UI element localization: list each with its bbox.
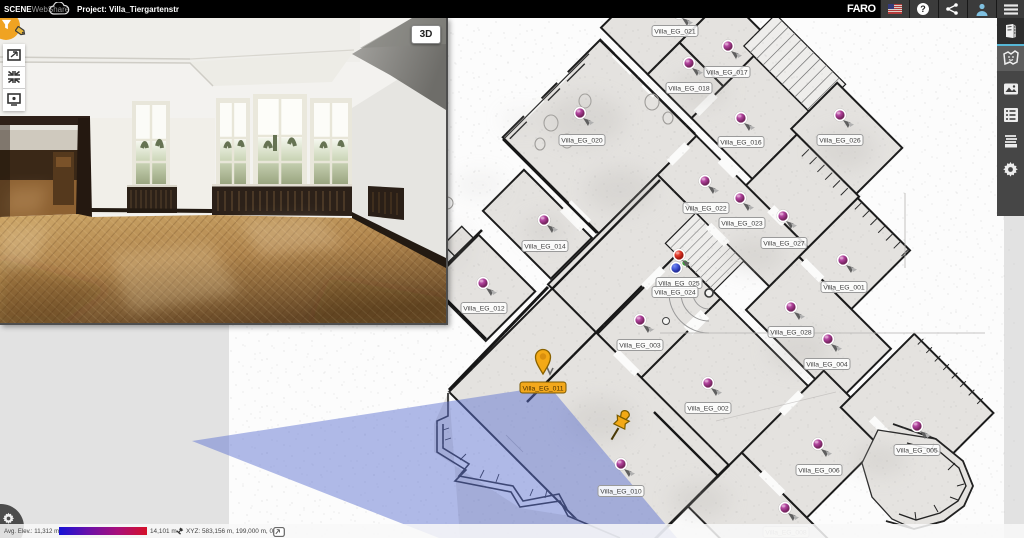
svg-text:Villa_EG_014: Villa_EG_014 <box>524 244 566 251</box>
svg-text:Villa_EG_027: Villa_EG_027 <box>763 241 805 248</box>
svg-text:Villa_EG_011: Villa_EG_011 <box>523 386 564 393</box>
svg-text:Villa_EG_002: Villa_EG_002 <box>687 406 729 413</box>
svg-text:Villa_EG_010: Villa_EG_010 <box>600 489 642 496</box>
svg-text:Villa_EG_018: Villa_EG_018 <box>668 86 710 93</box>
svg-text:Villa_EG_026: Villa_EG_026 <box>819 138 861 145</box>
svg-text:Villa_EG_021: Villa_EG_021 <box>654 29 696 36</box>
svg-text:Villa_EG_006: Villa_EG_006 <box>798 468 840 475</box>
svg-text:Villa_EG_023: Villa_EG_023 <box>721 221 763 228</box>
svg-text:Villa_EG_005: Villa_EG_005 <box>896 448 938 455</box>
svg-text:Villa_EG_017: Villa_EG_017 <box>706 70 748 77</box>
svg-text:Villa_EG_003: Villa_EG_003 <box>619 343 661 350</box>
svg-text:Villa_EG_016: Villa_EG_016 <box>720 140 762 147</box>
svg-text:Villa_EG_028: Villa_EG_028 <box>770 330 812 337</box>
svg-text:Villa_EG_020: Villa_EG_020 <box>561 138 603 145</box>
svg-text:Villa_EG_001: Villa_EG_001 <box>823 285 865 292</box>
svg-text:Villa_EG_012: Villa_EG_012 <box>463 306 505 313</box>
svg-text:Villa_EG_024: Villa_EG_024 <box>654 290 696 297</box>
svg-text:Villa_EG_004: Villa_EG_004 <box>806 362 848 369</box>
svg-text:Villa_EG_022: Villa_EG_022 <box>685 206 727 213</box>
